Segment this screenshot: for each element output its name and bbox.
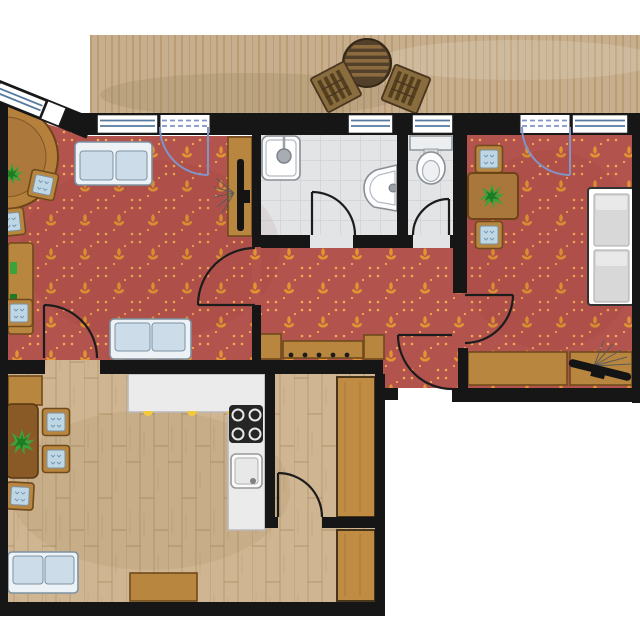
- wall-right-lower: [375, 374, 385, 616]
- wall-bedroom-bottom: [452, 388, 640, 402]
- storage-doorway: [278, 517, 322, 528]
- sofa-bottom: [110, 319, 191, 359]
- wc-window: [412, 115, 453, 134]
- kitchen-chair-1: [43, 409, 70, 436]
- entrance-doorway: [398, 388, 452, 402]
- kitchen-chair-2: [43, 446, 70, 473]
- living-hallway-doorway: [252, 247, 261, 305]
- living-room-window: [97, 115, 158, 134]
- wall-entrance-left: [383, 388, 398, 400]
- shower-room-window: [348, 115, 393, 134]
- wall-bottom-kitchen: [0, 602, 385, 616]
- shoe-cabinet: [258, 334, 281, 359]
- wall-shower-bottom-2: [353, 235, 413, 248]
- kitchen-chair-3: [6, 482, 34, 510]
- floor-plan: [0, 0, 640, 640]
- bedroom-sideboard-1: [468, 352, 567, 385]
- bedroom-window: [572, 115, 628, 134]
- wall-shower-wc: [397, 135, 408, 235]
- shower-doorway: [310, 235, 353, 248]
- stove: [229, 405, 263, 443]
- wardrobe-storage: [337, 377, 375, 517]
- bedroom-table: [468, 173, 518, 219]
- coat-bench: [283, 341, 363, 358]
- floor-plan-canvas: [0, 0, 640, 640]
- kitchen-sideboard-bottom: [130, 573, 197, 601]
- desk-chair: [6, 300, 33, 327]
- double-bed: [588, 188, 634, 305]
- wall-hall-bedroom-stub: [458, 348, 468, 388]
- wall-right-upper: [632, 113, 640, 403]
- living-kitchen-doorway: [45, 360, 100, 374]
- terrace: [90, 35, 640, 117]
- storage-room: [337, 377, 375, 517]
- wall-living-hall-upper: [252, 135, 261, 247]
- wardrobe-lower: [337, 530, 375, 601]
- kitchen-sideboard-top: [8, 376, 42, 405]
- tv-living: [237, 159, 244, 231]
- living-stool-1: [27, 169, 59, 201]
- wall-left: [0, 95, 8, 616]
- bedroom-doorway: [453, 293, 467, 348]
- wall-storage-bottom-1: [265, 517, 278, 528]
- dining-table: [6, 404, 38, 478]
- wall-wc-bedroom: [453, 113, 467, 293]
- shower-head: [277, 149, 291, 163]
- kitchen-sofa: [8, 552, 78, 593]
- sofa-top: [75, 142, 152, 185]
- hallway-cabinet: [364, 335, 384, 359]
- bedroom-chair-1: [476, 146, 503, 173]
- kitchen-sink: [231, 454, 262, 488]
- wall-shower-bottom-1: [252, 235, 310, 248]
- wall-storage-bottom-2: [322, 517, 378, 528]
- wall-storage-left: [265, 374, 275, 517]
- wc-doorway: [413, 235, 450, 248]
- bedroom-chair-2: [476, 222, 503, 249]
- wall-living-hall-lower: [252, 305, 261, 361]
- shower: [262, 132, 300, 180]
